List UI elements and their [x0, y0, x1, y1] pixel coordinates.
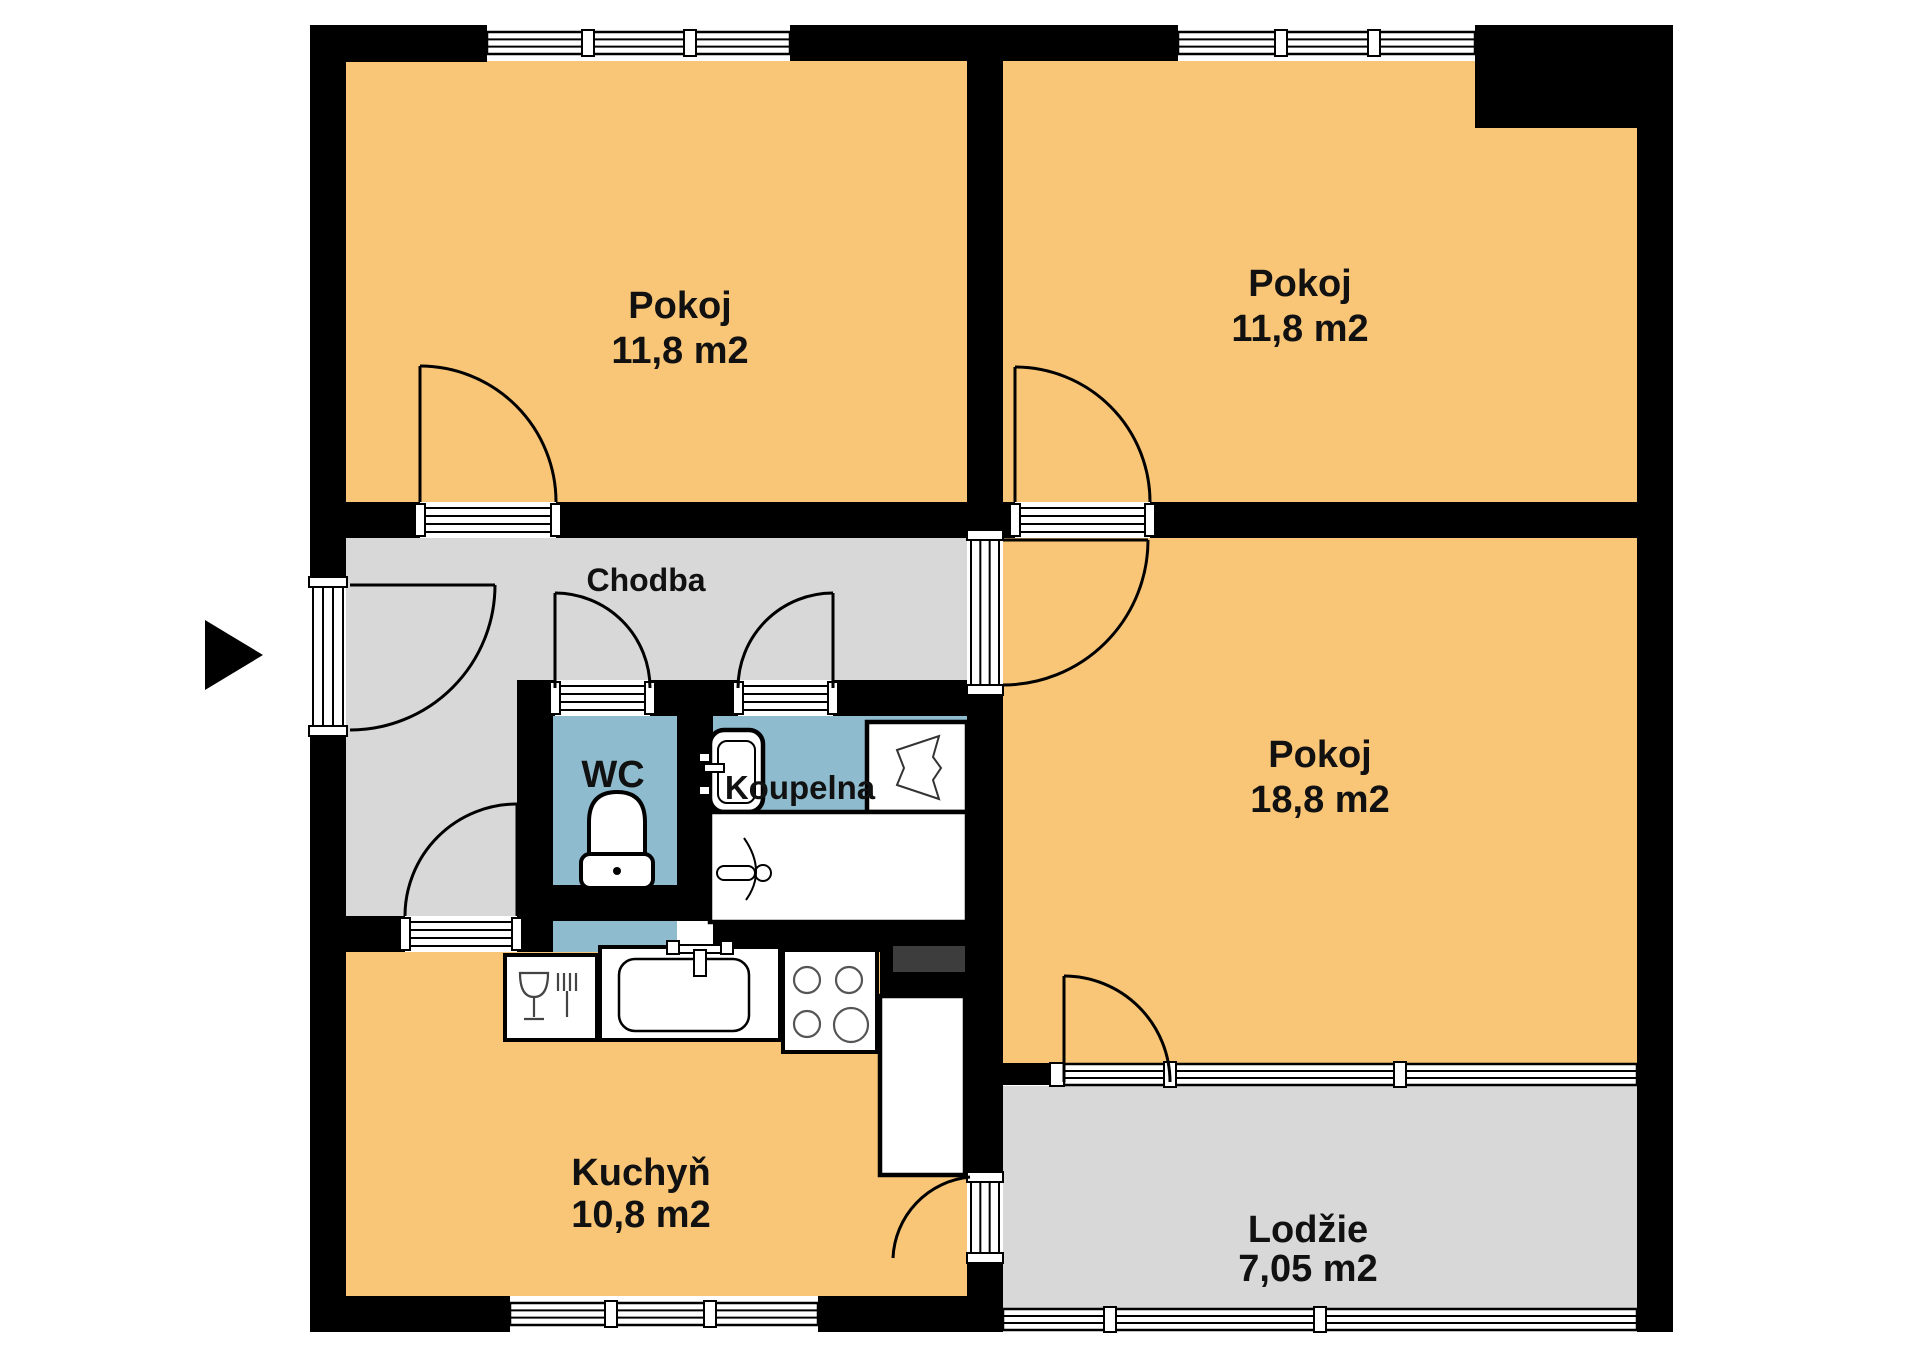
window-mullion	[1368, 30, 1380, 56]
bathtub-faucet	[717, 866, 755, 880]
door-sill-post	[512, 918, 522, 950]
room-label-wc: WC	[581, 754, 644, 796]
door-sill-post	[1145, 504, 1155, 536]
door-sill-post	[967, 685, 1003, 695]
bathtub-knob	[755, 865, 771, 881]
door-sill	[405, 922, 517, 946]
room-fill-chodba	[346, 538, 967, 680]
window-mullion	[684, 30, 696, 56]
ventilation-shaft	[893, 946, 965, 972]
kitchen-sink-tap	[667, 941, 679, 954]
room-label-pokoj-top-left: Pokoj	[628, 285, 731, 327]
window-frame	[510, 1303, 818, 1325]
window-mullion	[704, 1301, 716, 1327]
door-sill-post	[967, 1172, 1003, 1182]
window-frame	[487, 32, 790, 54]
door-sill-post	[1010, 504, 1020, 536]
room-area-pokoj-top-left: 11,8 m2	[611, 330, 748, 372]
window-mullion	[582, 30, 594, 56]
room-area-pokoj-top-right: 11,8 m2	[1231, 308, 1368, 350]
room-label-kuchyn: Kuchyň	[571, 1152, 710, 1194]
window-post	[1050, 1063, 1064, 1086]
wall	[677, 680, 713, 885]
door-sill	[420, 508, 556, 532]
door-sill-post	[309, 577, 347, 587]
floor-plan-page: Pokoj11,8 m2Pokoj11,8 m2Pokoj18,8 m2Chod…	[0, 0, 1920, 1358]
room-label-chodba: Chodba	[586, 562, 705, 598]
wall	[1475, 25, 1673, 128]
wall	[967, 61, 1003, 1332]
room-label-pokoj-top-right: Pokoj	[1248, 263, 1351, 305]
room-label-pokoj-large: Pokoj	[1268, 734, 1371, 776]
door-sill	[555, 686, 650, 710]
bath-sink-spout	[704, 764, 724, 772]
room-area-lodzie: 7,05 m2	[1238, 1248, 1377, 1290]
kitchen-sink-tap	[721, 941, 733, 954]
door-sill-post	[309, 726, 347, 736]
room-fill-pokoj-top-left	[346, 61, 967, 502]
fridge-icon	[880, 996, 965, 1175]
room-area-pokoj-large: 18,8 m2	[1250, 779, 1389, 821]
door-sill-post	[967, 1253, 1003, 1263]
door-sill	[971, 535, 999, 690]
door-sill-post	[967, 530, 1003, 540]
toilet-icon	[589, 792, 645, 858]
window-mullion	[1394, 1062, 1406, 1087]
window-mullion	[1275, 30, 1287, 56]
door-sill	[1015, 508, 1150, 532]
door-sill	[971, 1177, 999, 1258]
door-sill	[738, 686, 833, 710]
wall	[517, 885, 713, 921]
wall	[790, 25, 1178, 61]
bath-sink-tap	[699, 786, 710, 795]
door-sill-post	[551, 504, 561, 536]
dishwasher-icon	[505, 955, 597, 1040]
door-sill	[313, 582, 343, 731]
room-label-koupelna: Koupelna	[725, 769, 876, 806]
door-sill-post	[400, 918, 410, 950]
room-area-kuchyn: 10,8 m2	[571, 1194, 710, 1236]
floor-plan-svg: Pokoj11,8 m2Pokoj11,8 m2Pokoj18,8 m2Chod…	[0, 0, 1920, 1358]
bath-sink-tap	[699, 753, 710, 762]
toilet-flush-dot	[613, 867, 621, 875]
window-mullion	[1314, 1307, 1326, 1332]
kitchen-sink-spout	[694, 950, 706, 976]
wall	[310, 25, 487, 62]
kitchen-sink-basin	[619, 959, 749, 1031]
window-frame	[1064, 1064, 1637, 1085]
window-mullion	[1104, 1307, 1116, 1332]
room-label-lodzie: Lodžie	[1248, 1209, 1368, 1251]
wall	[1003, 1063, 1050, 1085]
door-sill-post	[415, 504, 425, 536]
window-frame	[1178, 32, 1475, 54]
window-mullion	[605, 1301, 617, 1327]
wall	[1637, 25, 1673, 1332]
room-fill-chodba	[346, 680, 517, 916]
